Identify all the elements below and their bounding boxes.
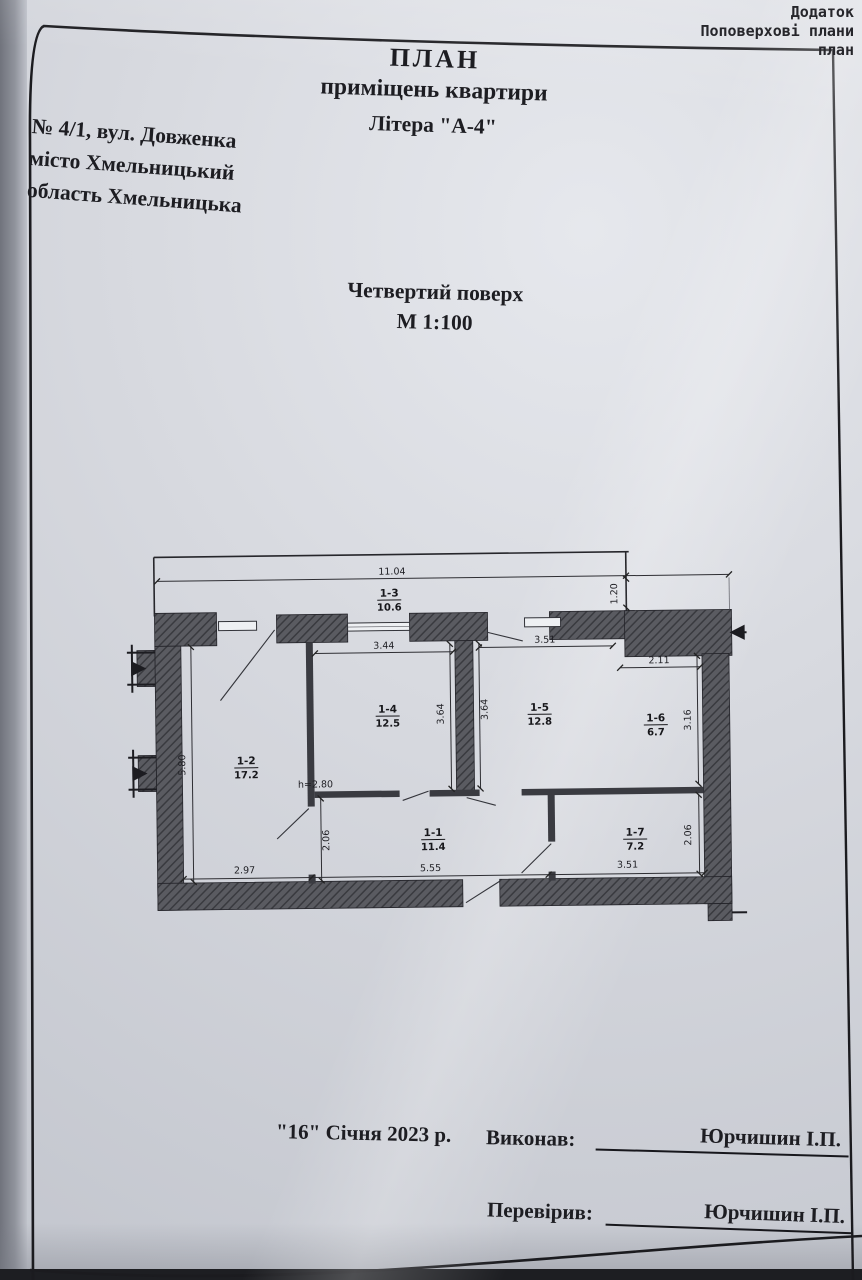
corner-note-line2: Поповерхові плани [700, 22, 854, 41]
window-sill-icon [219, 621, 257, 630]
windows [219, 617, 561, 632]
room-label-1-7: 1-7 7.2 [623, 826, 647, 852]
executor-label: Виконав: [486, 1125, 576, 1152]
dim-top-left-width: 3.44 [373, 641, 394, 652]
svg-text:1-5: 1-5 [530, 702, 549, 714]
floor-info: Четвертий поверх М 1:100 [254, 272, 615, 341]
svg-text:1-4: 1-4 [378, 703, 397, 715]
document-date: "16" Січня 2023 р. [276, 1119, 452, 1148]
ceiling-height-label: h=2.80 [298, 779, 333, 790]
svg-text:1-3: 1-3 [380, 587, 399, 599]
dim-bottom-right: 3.51 [617, 860, 638, 871]
dim-room7-height: 2.06 [683, 824, 694, 845]
dim-left-height: 5.80 [177, 754, 188, 775]
svg-text:6.7: 6.7 [647, 727, 665, 738]
svg-text:10.6: 10.6 [377, 602, 402, 613]
svg-text:12.8: 12.8 [527, 717, 552, 728]
document-title: ПЛАН приміщень квартири Літера "А-4" [237, 38, 632, 144]
dim-bottom-middle: 5.55 [420, 863, 441, 874]
dim-overall-width: 11.04 [378, 566, 405, 577]
svg-text:1-2: 1-2 [237, 755, 256, 767]
room-label-1-4: 1-4 12.5 [375, 703, 400, 729]
dim-hall-left-height: 2.06 [321, 830, 332, 851]
door-swings [220, 627, 552, 906]
room-label-1-1: 1-1 11.4 [421, 827, 446, 853]
dim-top-right-width: 3.51 [534, 635, 555, 646]
svg-text:12.5: 12.5 [375, 718, 400, 729]
corner-note-line3: план [700, 41, 854, 60]
svg-text:1-7: 1-7 [626, 826, 645, 838]
svg-text:1-6: 1-6 [646, 712, 665, 724]
room-label-1-5: 1-5 12.8 [527, 702, 552, 728]
checker-name: Юрчишин І.П. [704, 1199, 854, 1230]
corner-note-line1: Додаток [700, 3, 854, 22]
svg-text:17.2: 17.2 [234, 770, 259, 781]
svg-text:11.4: 11.4 [421, 842, 446, 853]
checker-label: Перевірив: [487, 1197, 594, 1225]
address-block: № 4/1, вул. Довженка місто Хмельницький … [26, 110, 248, 221]
dim-room4-height: 3.64 [436, 703, 447, 724]
dim-balcony-depth: 1.20 [609, 583, 620, 604]
window-sill-icon [524, 617, 560, 626]
floor-plan: 11.04 1.20 3.44 3.51 2.11 3.64 3.64 3.16… [124, 536, 751, 949]
exterior-walls [136, 606, 735, 927]
svg-text:7.2: 7.2 [626, 841, 644, 852]
dim-room6-height: 3.16 [683, 709, 694, 730]
corner-note: Додаток Поповерхові плани план [700, 3, 854, 60]
executor-name: Юрчишин І.П. [700, 1123, 850, 1153]
svg-text:1-1: 1-1 [424, 827, 443, 839]
room-label-1-2: 1-2 17.2 [234, 755, 259, 781]
room-label-1-3: 1-3 10.6 [377, 587, 402, 613]
dim-room6-width: 2.11 [648, 655, 669, 666]
room-label-1-6: 1-6 6.7 [644, 712, 668, 738]
dim-room5-height: 3.64 [479, 699, 490, 720]
partitions [306, 638, 705, 884]
dim-bottom-left: 2.97 [234, 865, 255, 876]
